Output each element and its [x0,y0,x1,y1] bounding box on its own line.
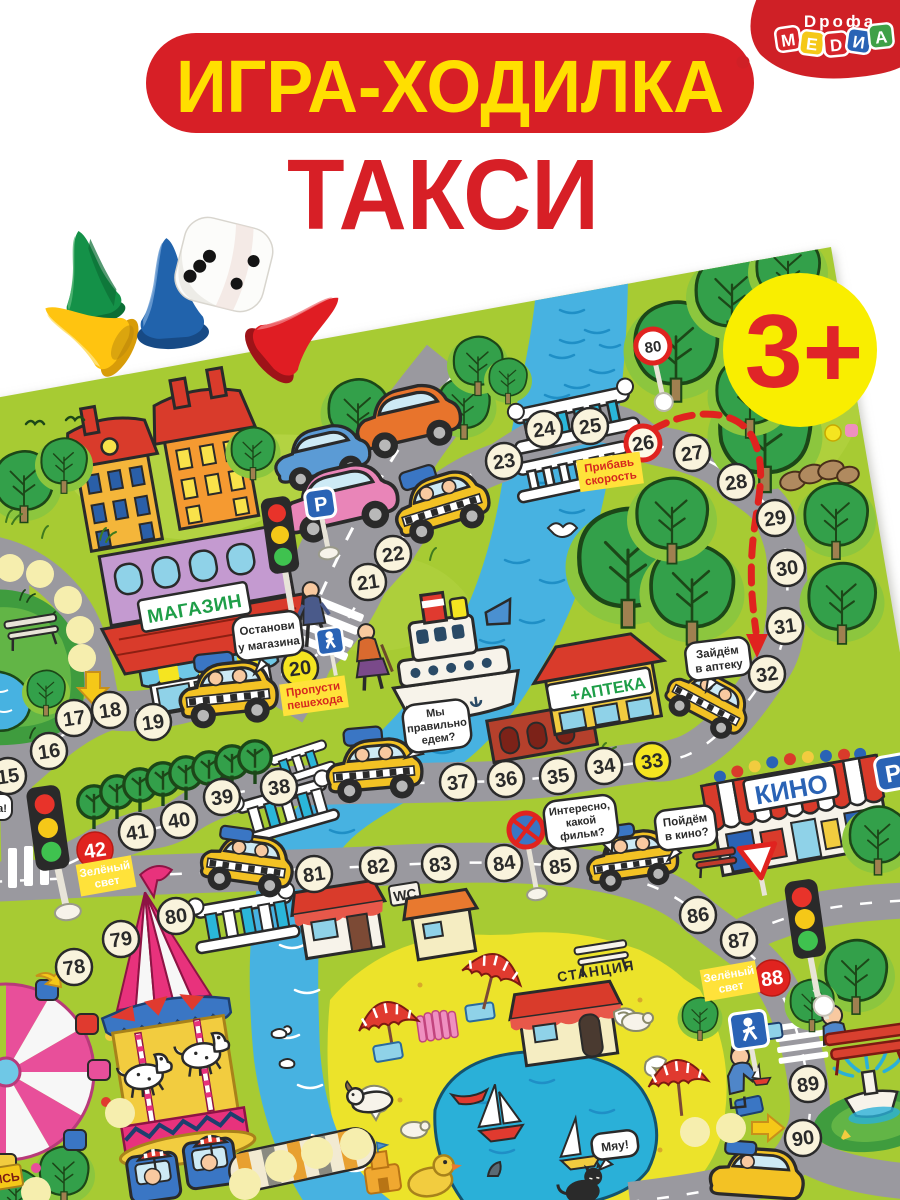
svg-text:33: 33 [640,750,665,775]
svg-text:32: 32 [755,663,780,688]
svg-text:23: 23 [492,450,517,475]
svg-text:24: 24 [532,417,558,442]
svg-text:88: 88 [760,967,785,992]
svg-text:18: 18 [98,699,123,724]
svg-text:М: М [780,30,797,51]
svg-text:78: 78 [62,956,87,981]
svg-text:79: 79 [109,928,134,953]
svg-text:29: 29 [763,507,788,532]
svg-text:А: А [874,27,888,47]
svg-text:30: 30 [775,557,800,582]
svg-text:3+: 3+ [745,294,864,410]
svg-text:25: 25 [578,415,603,440]
svg-text:ИГРА-ХОДИЛКА: ИГРА-ХОДИЛКА [176,45,724,128]
svg-text:41: 41 [125,821,150,846]
svg-text:89: 89 [796,1073,821,1098]
svg-text:16: 16 [37,740,62,765]
svg-text:38: 38 [267,776,292,801]
svg-text:87: 87 [727,929,752,954]
svg-text:42: 42 [83,839,108,864]
svg-text:84: 84 [492,851,518,876]
svg-text:80: 80 [164,905,189,930]
svg-text:40: 40 [167,809,192,834]
svg-text:22: 22 [381,543,406,568]
svg-text:Е: Е [805,34,819,54]
svg-text:Dрофа: Dрофа [804,12,876,31]
svg-text:37: 37 [446,771,471,796]
svg-text:81: 81 [302,863,327,888]
svg-text:19: 19 [141,711,166,736]
svg-text:36: 36 [494,768,519,793]
svg-text:80: 80 [644,338,663,357]
svg-text:83: 83 [428,853,453,878]
svg-text:Мы: Мы [425,706,445,720]
svg-text:D: D [829,35,843,55]
svg-text:21: 21 [356,571,381,596]
svg-text:82: 82 [366,855,391,880]
svg-text:28: 28 [724,471,749,496]
svg-text:17: 17 [62,707,87,732]
svg-text:ТАКСИ: ТАКСИ [287,139,599,251]
svg-text:31: 31 [773,615,798,640]
svg-text:85: 85 [548,855,573,880]
svg-text:20: 20 [288,657,313,682]
svg-text:15: 15 [0,765,21,790]
svg-text:90: 90 [791,1127,816,1152]
svg-text:27: 27 [680,442,705,467]
svg-text:а!: а! [0,803,7,815]
svg-text:86: 86 [686,904,711,929]
svg-text:39: 39 [210,786,235,811]
svg-text:34: 34 [592,754,618,779]
svg-text:35: 35 [546,765,571,790]
